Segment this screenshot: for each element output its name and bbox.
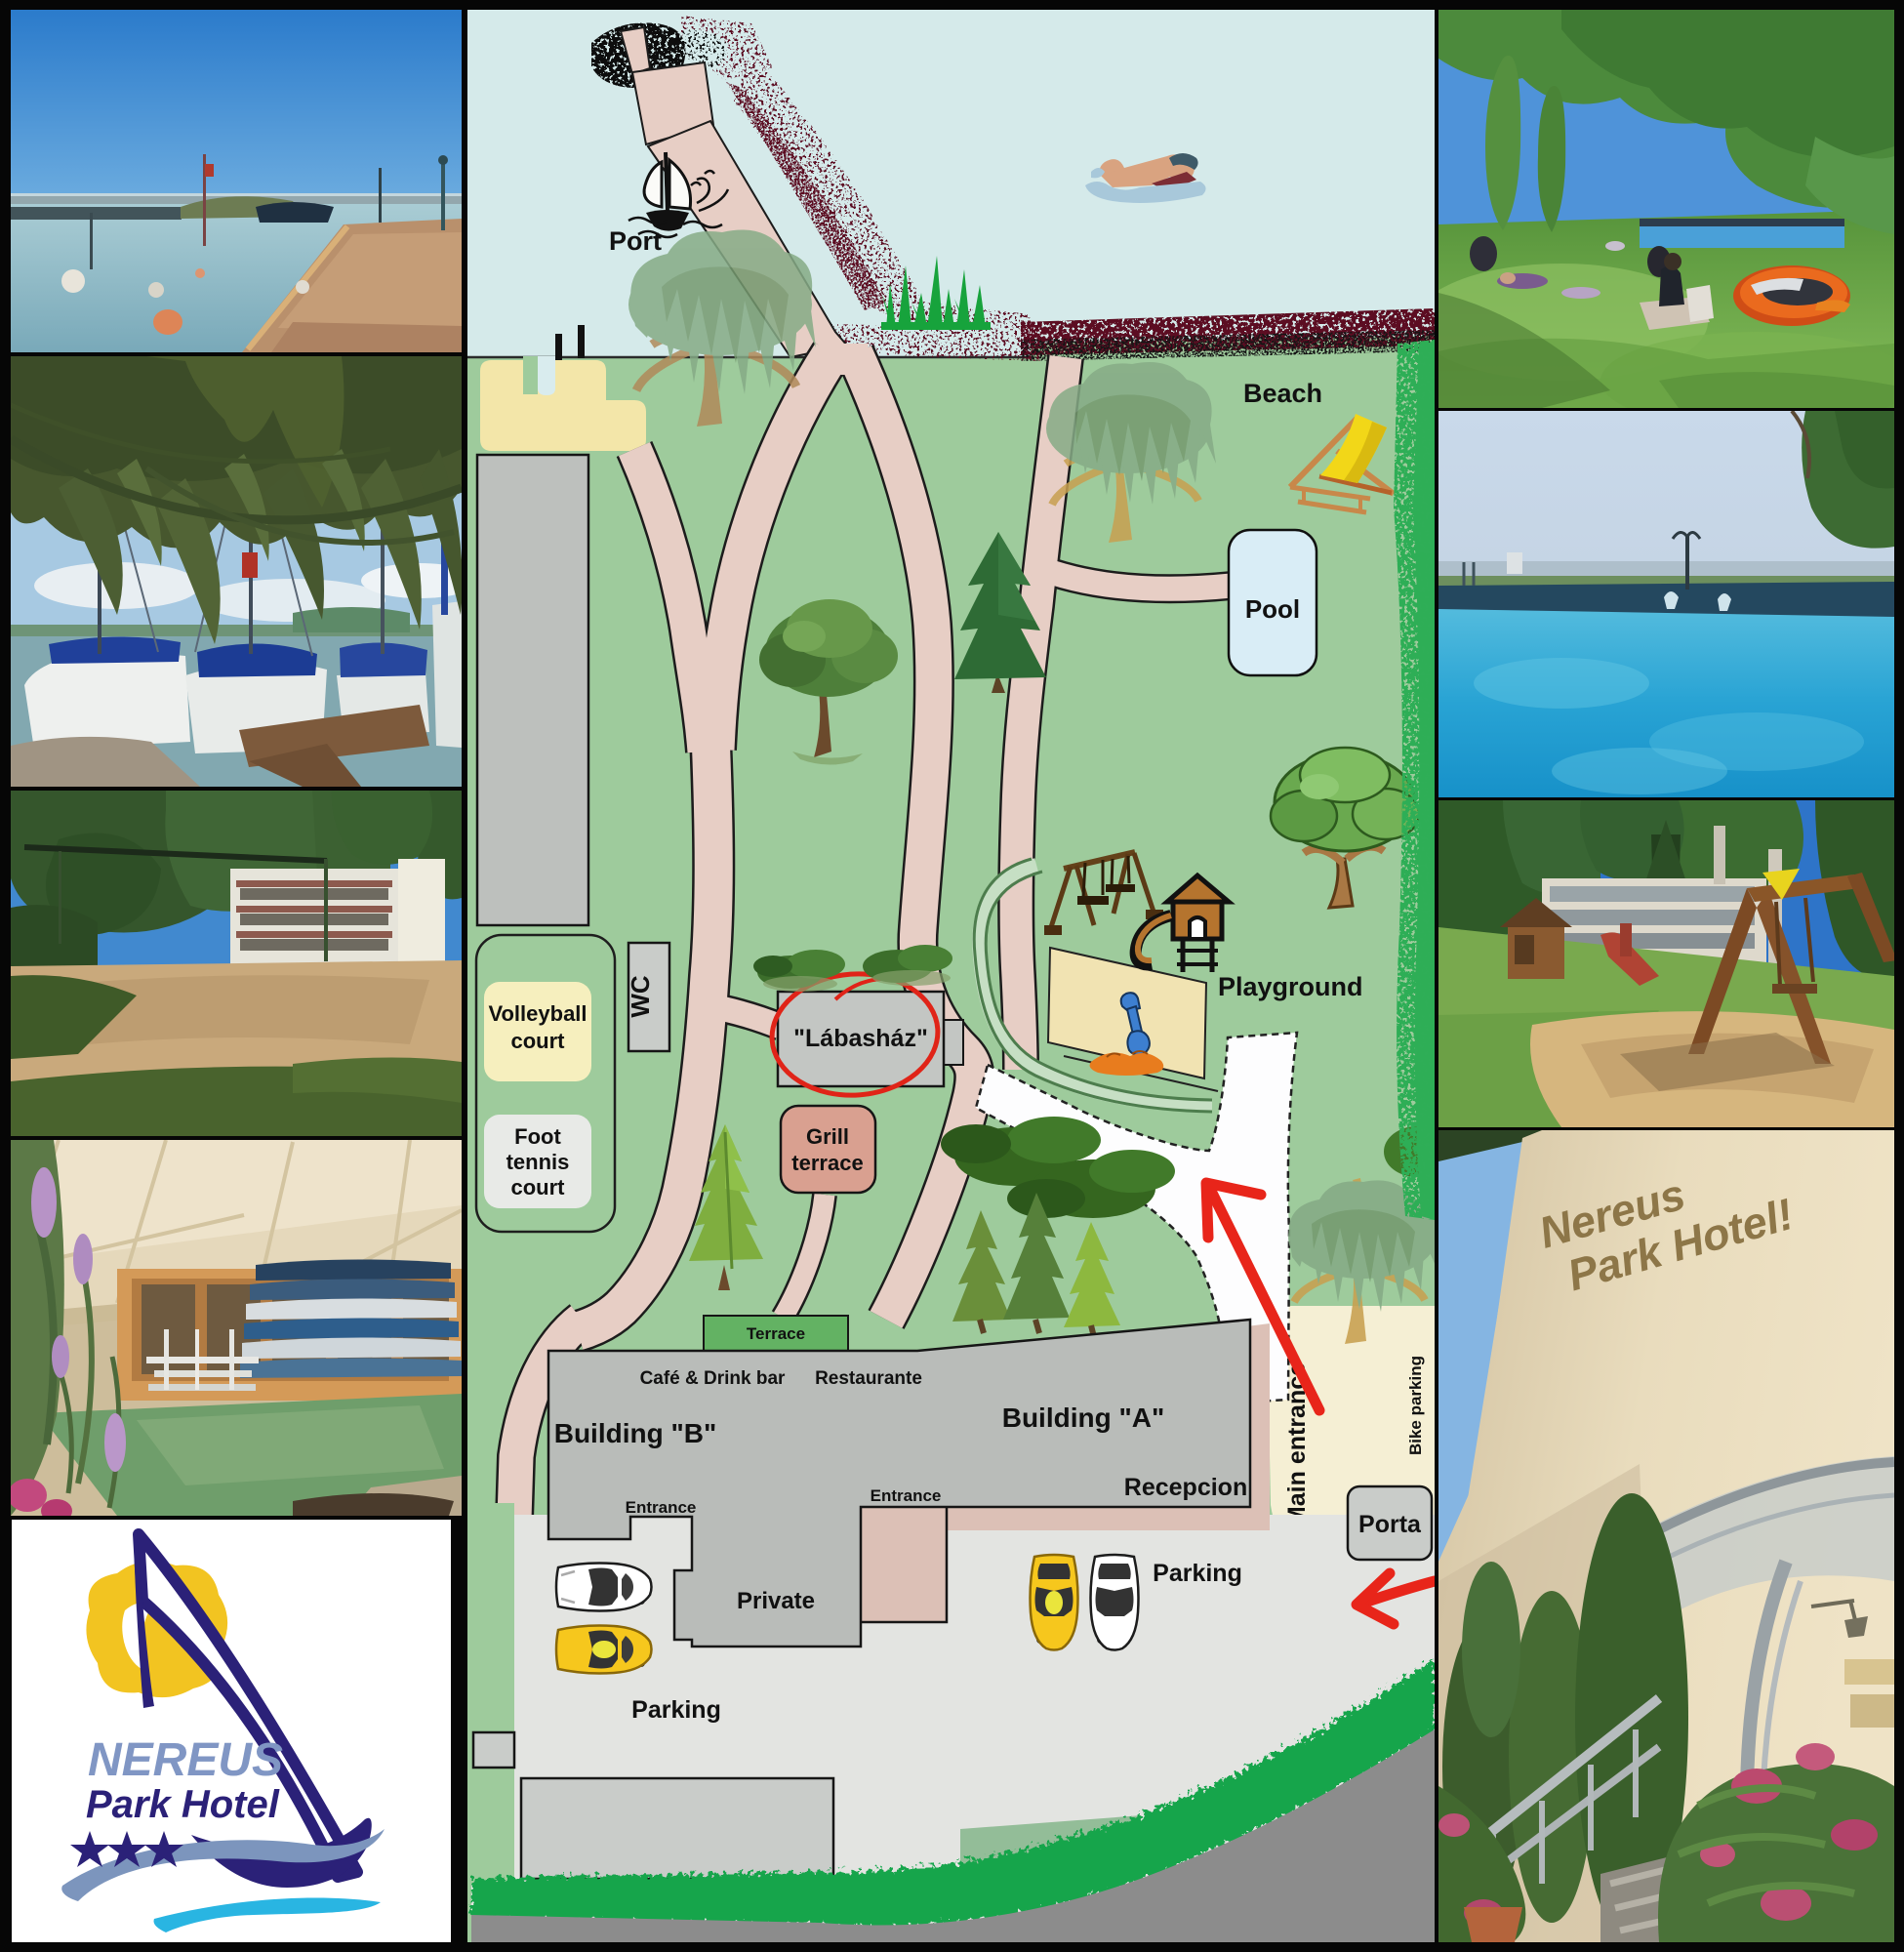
- svg-text:court: court: [511, 1175, 566, 1200]
- svg-text:Grill: Grill: [806, 1124, 849, 1149]
- svg-text:Restaurante: Restaurante: [815, 1368, 922, 1389]
- svg-text:Terrace: Terrace: [747, 1324, 805, 1343]
- svg-text:Beach: Beach: [1243, 379, 1322, 408]
- svg-text:Private: Private: [737, 1588, 815, 1614]
- svg-text:Pool: Pool: [1245, 594, 1300, 624]
- svg-text:"Lábasház": "Lábasház": [793, 1025, 928, 1052]
- svg-text:court: court: [511, 1029, 566, 1053]
- svg-text:Port: Port: [609, 226, 662, 256]
- svg-text:Foot: Foot: [514, 1124, 561, 1149]
- svg-text:Park Hotel: Park Hotel: [86, 1783, 280, 1826]
- svg-text:NEREUS: NEREUS: [88, 1734, 283, 1786]
- svg-text:Café & Drink bar: Café & Drink bar: [640, 1368, 786, 1389]
- svg-text:Parking: Parking: [631, 1696, 721, 1724]
- svg-text:tennis: tennis: [506, 1150, 570, 1174]
- svg-text:Porta: Porta: [1358, 1511, 1422, 1538]
- svg-text:Parking: Parking: [1153, 1560, 1242, 1587]
- svg-text:Entrance: Entrance: [871, 1486, 942, 1505]
- svg-text:Bike parking: Bike parking: [1406, 1356, 1425, 1455]
- svg-text:Playground: Playground: [1218, 972, 1363, 1001]
- svg-text:Volleyball: Volleyball: [488, 1001, 587, 1026]
- svg-text:Recepcion: Recepcion: [1124, 1474, 1247, 1501]
- svg-text:Entrance: Entrance: [626, 1498, 697, 1517]
- svg-text:WC: WC: [626, 975, 655, 1018]
- svg-text:Building "B": Building "B": [554, 1418, 717, 1448]
- svg-text:Building "A": Building "A": [1002, 1403, 1165, 1433]
- svg-text:terrace: terrace: [791, 1151, 863, 1175]
